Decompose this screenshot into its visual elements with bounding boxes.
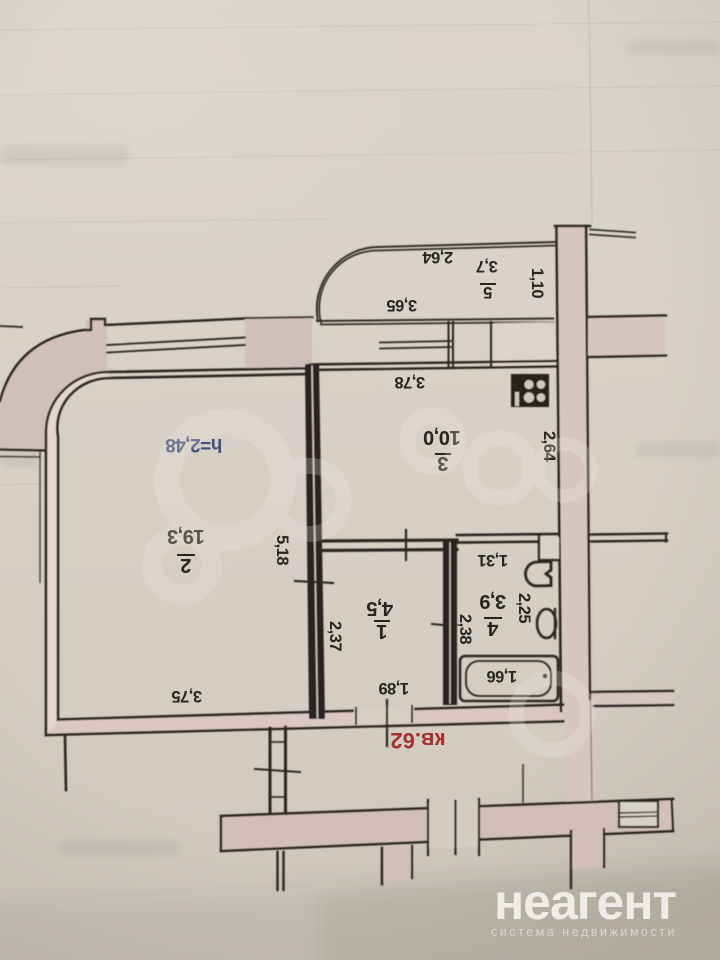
svg-text:1: 1 bbox=[376, 620, 387, 642]
svg-text:3,9: 3,9 bbox=[479, 590, 506, 612]
svg-text:1,89: 1,89 bbox=[379, 679, 409, 697]
svg-text:система недвижимости: система недвижимости bbox=[491, 925, 677, 939]
svg-text:2,37: 2,37 bbox=[326, 621, 344, 651]
svg-text:4: 4 bbox=[486, 617, 498, 639]
svg-text:2,64: 2,64 bbox=[422, 248, 453, 266]
svg-text:4,5: 4,5 bbox=[366, 597, 393, 619]
svg-text:2,25: 2,25 bbox=[515, 593, 533, 623]
svg-text:3,7: 3,7 bbox=[476, 257, 498, 275]
svg-text:2: 2 bbox=[180, 554, 191, 576]
svg-text:2,38: 2,38 bbox=[456, 614, 474, 644]
svg-text:1,10: 1,10 bbox=[528, 268, 546, 298]
svg-text:1,66: 1,66 bbox=[487, 667, 517, 685]
svg-text:3,78: 3,78 bbox=[395, 373, 425, 391]
svg-text:3,75: 3,75 bbox=[172, 687, 202, 705]
svg-text:кв.62: кв.62 bbox=[390, 728, 445, 753]
svg-text:5,18: 5,18 bbox=[273, 535, 291, 565]
svg-text:неагент: неагент bbox=[494, 874, 677, 930]
svg-text:5: 5 bbox=[483, 283, 492, 301]
svg-text:3,65: 3,65 bbox=[387, 296, 417, 314]
svg-text:1,31: 1,31 bbox=[478, 551, 508, 569]
